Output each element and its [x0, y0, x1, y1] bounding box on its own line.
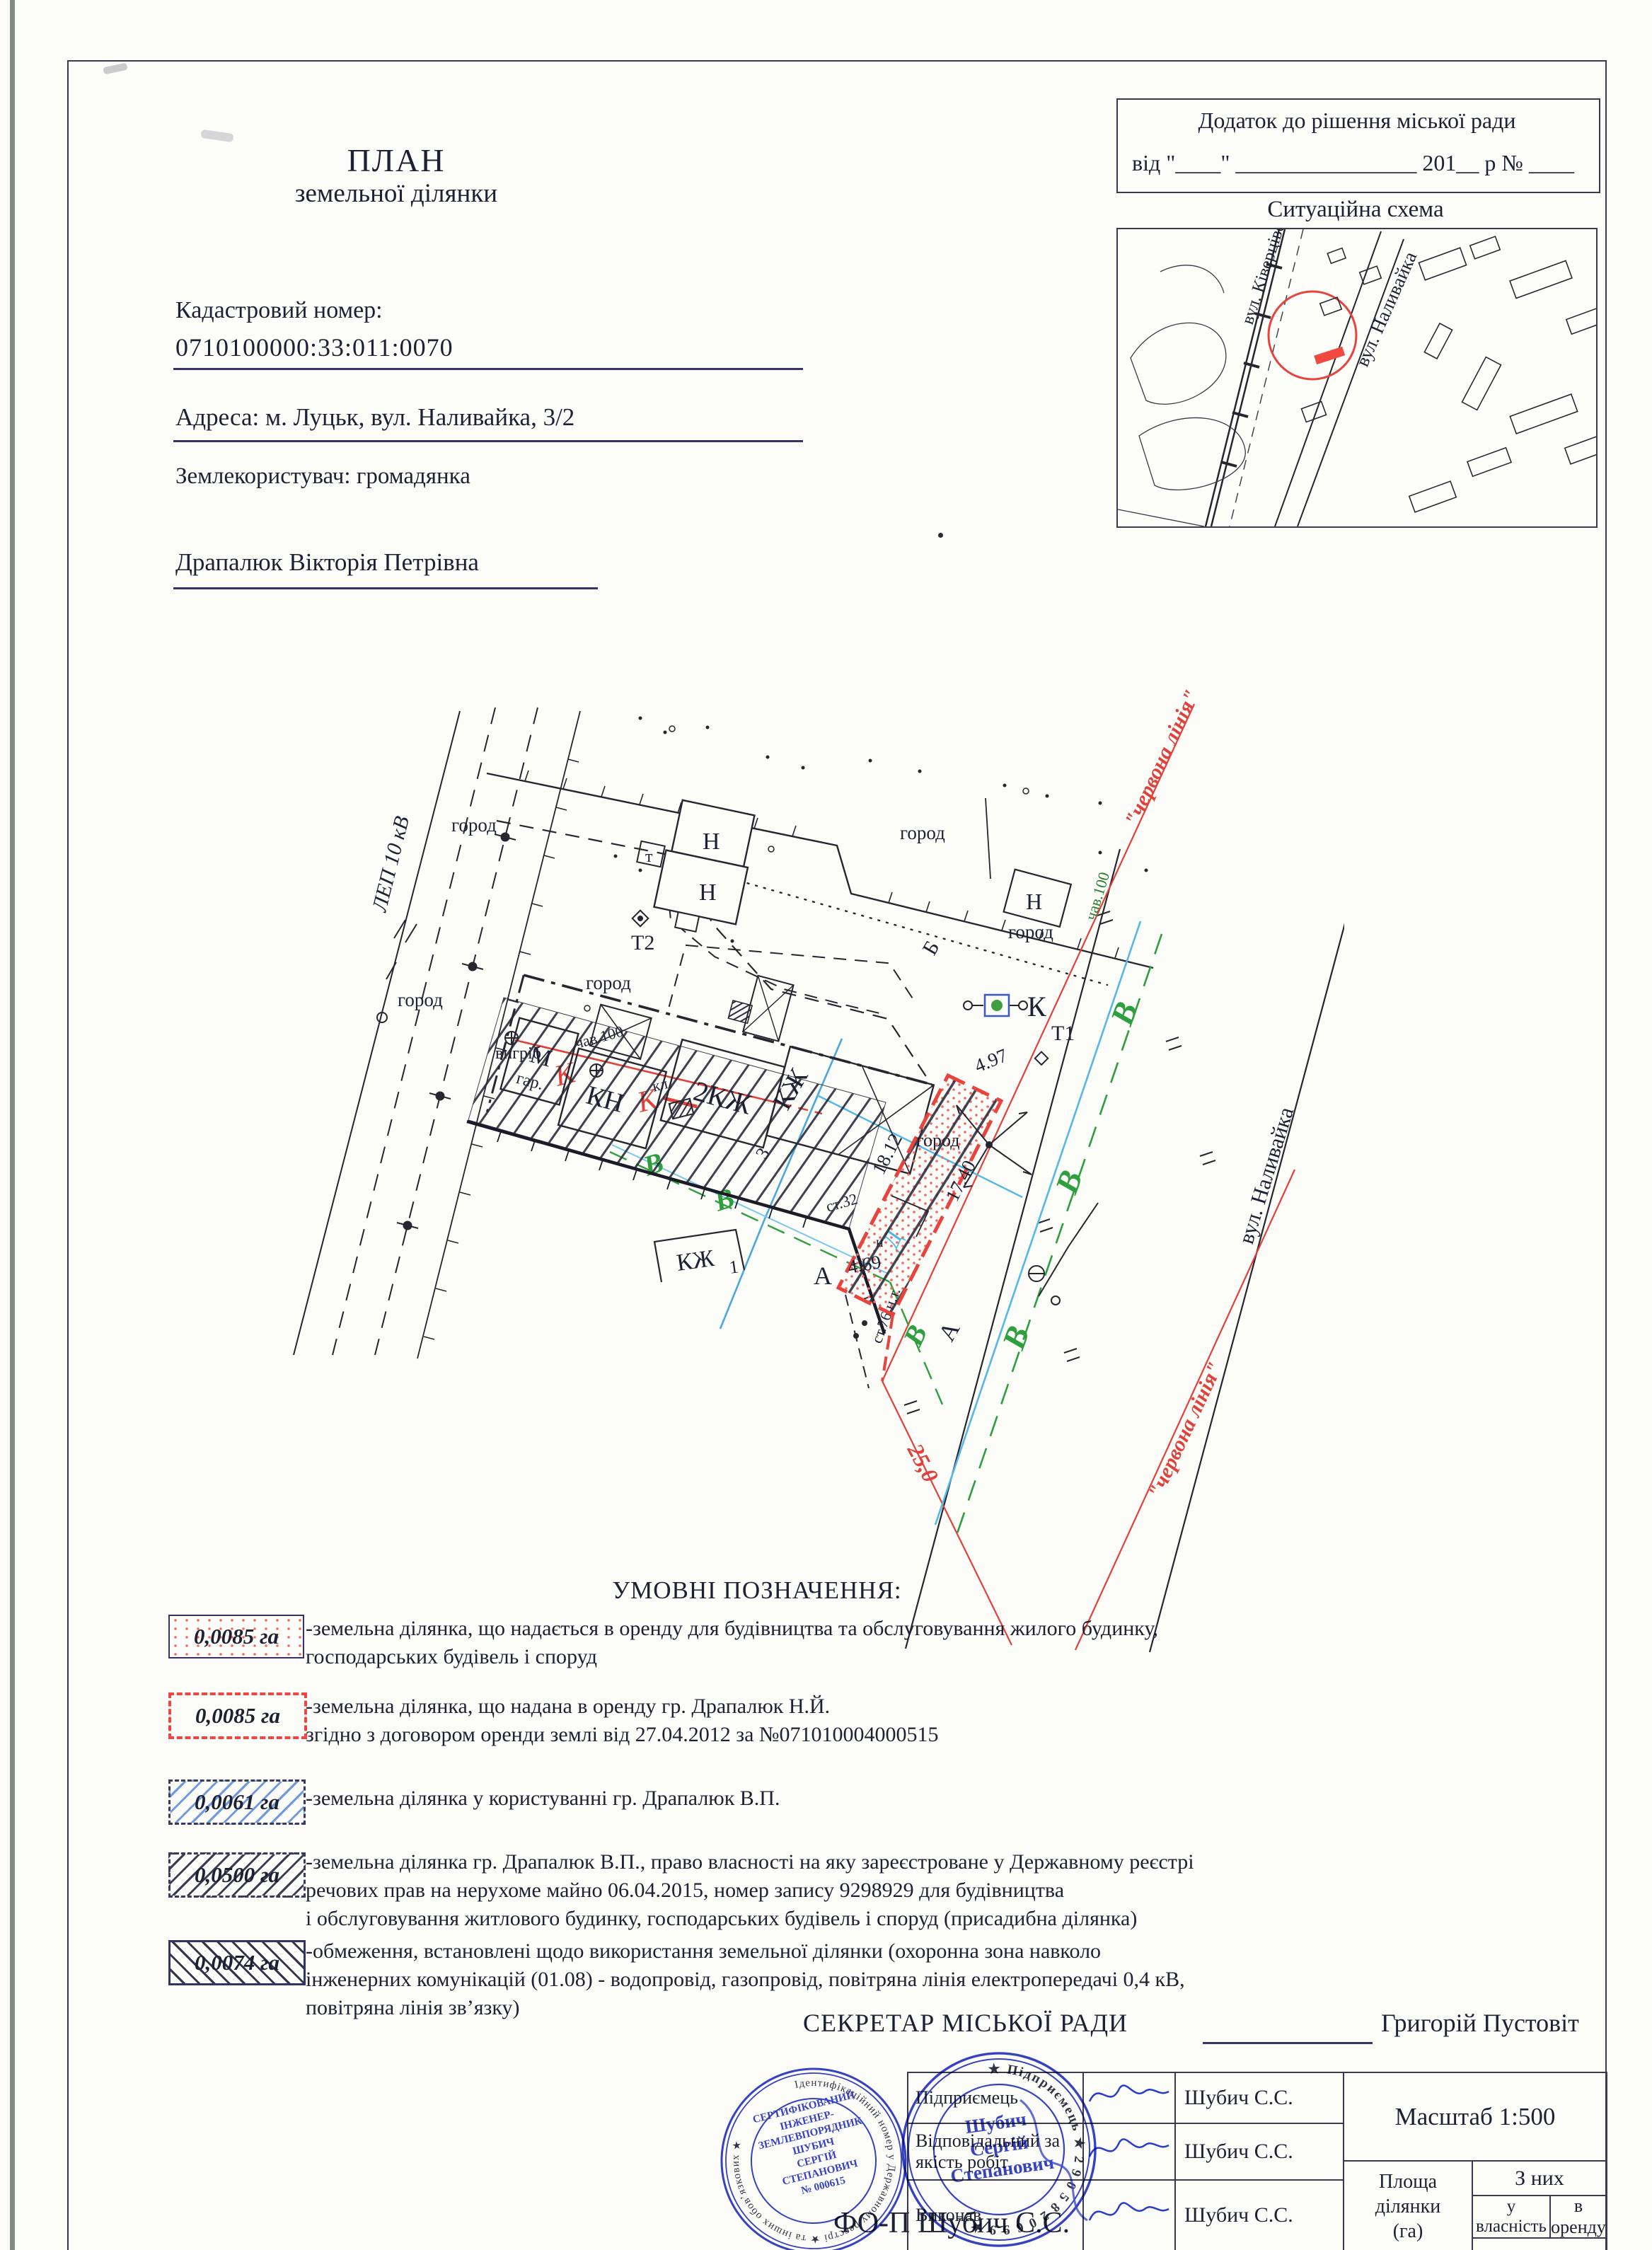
legend-swatch-rented: 0,0085 га: [168, 1692, 307, 1739]
t1-label: Т1: [1051, 1022, 1075, 1045]
situation-terrain: [1118, 265, 1245, 526]
kzh-box-label: КЖ: [675, 1245, 716, 1276]
t-box-label: т: [645, 848, 653, 866]
dimension-497: 4.97: [971, 1044, 1010, 1077]
stamp-signature: [1006, 2079, 1098, 2234]
building-n-main: [651, 799, 758, 940]
garden-label: город: [900, 822, 945, 843]
building-n-label: Н: [699, 879, 717, 906]
survey-point-t1: [1035, 1052, 1048, 1065]
signature-line: [1203, 2042, 1373, 2044]
annex-line2: від "____" ________________ 201__ р № __…: [1132, 150, 1599, 176]
zone-a-label: А: [934, 1317, 966, 1346]
zone-a-label: А: [814, 1262, 832, 1290]
underline: [173, 368, 803, 370]
road-nalyvaika: [1275, 231, 1404, 526]
gas-regulator: [964, 995, 1027, 1016]
address-line: Адреса: м. Луцьк, вул. Наливайка, 3/2: [175, 403, 574, 432]
building-n-label: Н: [703, 829, 720, 855]
land-user-line: Землекористувач: громадянка: [175, 463, 470, 490]
lep-label: ЛЕП 10 кВ: [368, 814, 415, 915]
land-plan-drawing: ЛЕП 10 кВ: [283, 658, 1344, 1656]
legend-title: УМОВНІ ПОЗНАЧЕННЯ:: [368, 1576, 1146, 1605]
b-letter: Б: [918, 937, 944, 959]
building-n-label: Н: [1026, 889, 1042, 914]
secretary-name: Григорій Пустовіт: [1381, 2008, 1579, 2038]
survey-point-t2: [633, 911, 649, 927]
legend-swatch-rent-new: 0,0085 га: [168, 1615, 304, 1658]
scale-label: Масштаб 1:500: [1344, 2073, 1606, 2162]
water-v-letter: В: [896, 1320, 933, 1351]
cadastral-number: 0710100000:33:011:0070: [175, 333, 454, 362]
street-name-label: вул. Наливайка: [1233, 1104, 1298, 1247]
scale-area-table: Масштаб 1:500 Площа ділянки (га) З них у…: [1343, 2072, 1607, 2250]
name-cell: Шубич С.С.: [1176, 2181, 1344, 2250]
ownership-header: у власність: [1473, 2196, 1551, 2239]
plot-area-header: Площа ділянки (га): [1344, 2162, 1473, 2250]
page-subtitle: земельної ділянки: [163, 178, 630, 209]
water-v-letter: В: [1048, 1165, 1090, 1199]
legend-text: -земельна ділянка, що надана в оренду гр…: [306, 1692, 939, 1749]
garden-label: город: [1008, 921, 1053, 942]
garden-label: город: [916, 1130, 960, 1150]
land-user-name: Драпалюк Вікторія Петрівна: [175, 548, 479, 577]
legend-text: -земельна ділянка гр. Драпалюк В.П., пра…: [306, 1848, 1194, 1933]
k-point-label: К: [1027, 991, 1046, 1022]
name-cell: Шубич С.С.: [1176, 2124, 1344, 2179]
underline: [173, 440, 803, 442]
garden-label: город: [586, 972, 631, 993]
red-dimension-25: 25,0: [902, 1439, 944, 1487]
situation-buildings: [1301, 236, 1596, 512]
small-n-label: н: [876, 1235, 884, 1250]
annex-line1: Додаток до рішення міської ради: [1116, 108, 1598, 134]
situation-map-drawing: вул. Ківерцівська вул. Наливайка: [1118, 229, 1596, 526]
water-v-letter: В: [995, 1321, 1036, 1354]
scanned-land-plan-page: ПЛАН земельної ділянки Кадастровий номер…: [0, 0, 1652, 2250]
street-label-kivertsivska: вул. Ківерцівська: [1238, 229, 1296, 327]
legend-swatch-owned: 0,0500 га: [168, 1852, 306, 1898]
cadastral-label: Кадастровий номер:: [175, 297, 383, 324]
situation-title: Ситуаційна схема: [1116, 197, 1595, 223]
secretary-label: СЕКРЕТАР МІСЬКОЇ РАДИ: [803, 2008, 1128, 2038]
site-highlight-plot: [1314, 347, 1345, 364]
lease-header: в оренду: [1551, 2196, 1606, 2239]
point-number: 1: [728, 1256, 740, 1278]
legend-swatch-restrictions: 0,0074 га: [168, 1940, 306, 1985]
street-label-nalyvaika: вул. Наливайка: [1351, 248, 1421, 369]
legend-swatch-use: 0,0061 га: [168, 1779, 306, 1825]
red-line-label: "червона лінія": [1120, 686, 1203, 830]
legend-text: -земельна ділянка у користуванні гр. Дра…: [306, 1784, 780, 1813]
page-title: ПЛАН: [163, 142, 630, 179]
scan-edge-strip: [10, 0, 15, 2250]
entrepreneur-stamp: ★ Підприємець ★ 2 9 0 5 8 2 0 6 9 9 ★ Шу…: [900, 2050, 1098, 2250]
underline: [173, 587, 598, 589]
red-line-label: "червона лінія": [1143, 1358, 1227, 1502]
garden-label: город: [398, 989, 443, 1010]
t2-label: Т2: [631, 931, 654, 954]
name-cell: Шубич С.С.: [1176, 2073, 1344, 2123]
hatched-yard-area: [468, 998, 886, 1228]
garden-label: город: [451, 814, 497, 836]
pipe-spec-label: чав.100: [1082, 870, 1113, 922]
situation-map: вул. Ківерцівська вул. Наливайка: [1116, 228, 1598, 528]
legend-text: -земельна ділянка, що надається в оренду…: [306, 1615, 1158, 1671]
engineer-stamp: Ідентифікаційний номер у Державному реєс…: [719, 2066, 908, 2250]
of-them-header: З них: [1473, 2162, 1606, 2196]
